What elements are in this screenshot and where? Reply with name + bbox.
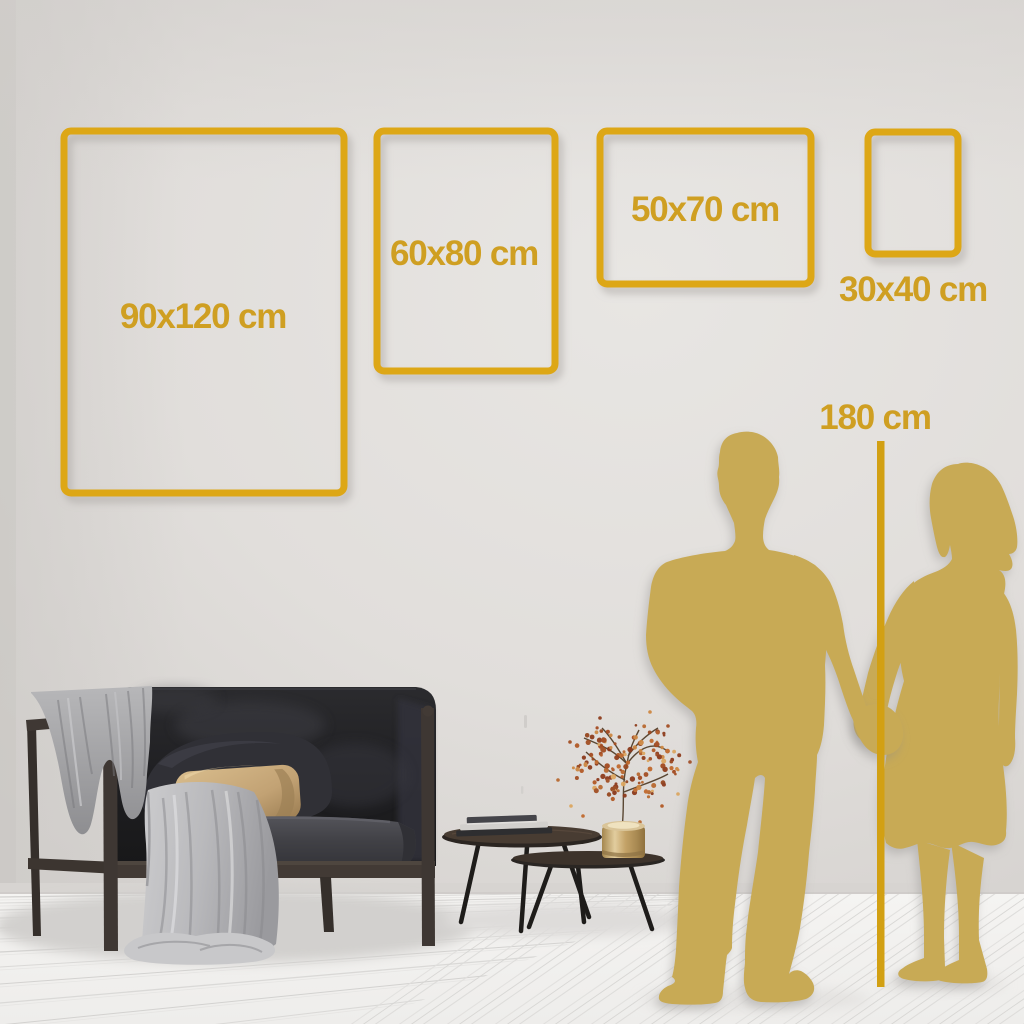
svg-text:90x120 cm: 90x120 cm: [120, 297, 286, 336]
svg-text:30x40 cm: 30x40 cm: [839, 270, 987, 309]
svg-text:180 cm: 180 cm: [819, 398, 931, 437]
svg-text:50x70 cm: 50x70 cm: [631, 190, 779, 229]
svg-text:60x80 cm: 60x80 cm: [390, 234, 538, 273]
